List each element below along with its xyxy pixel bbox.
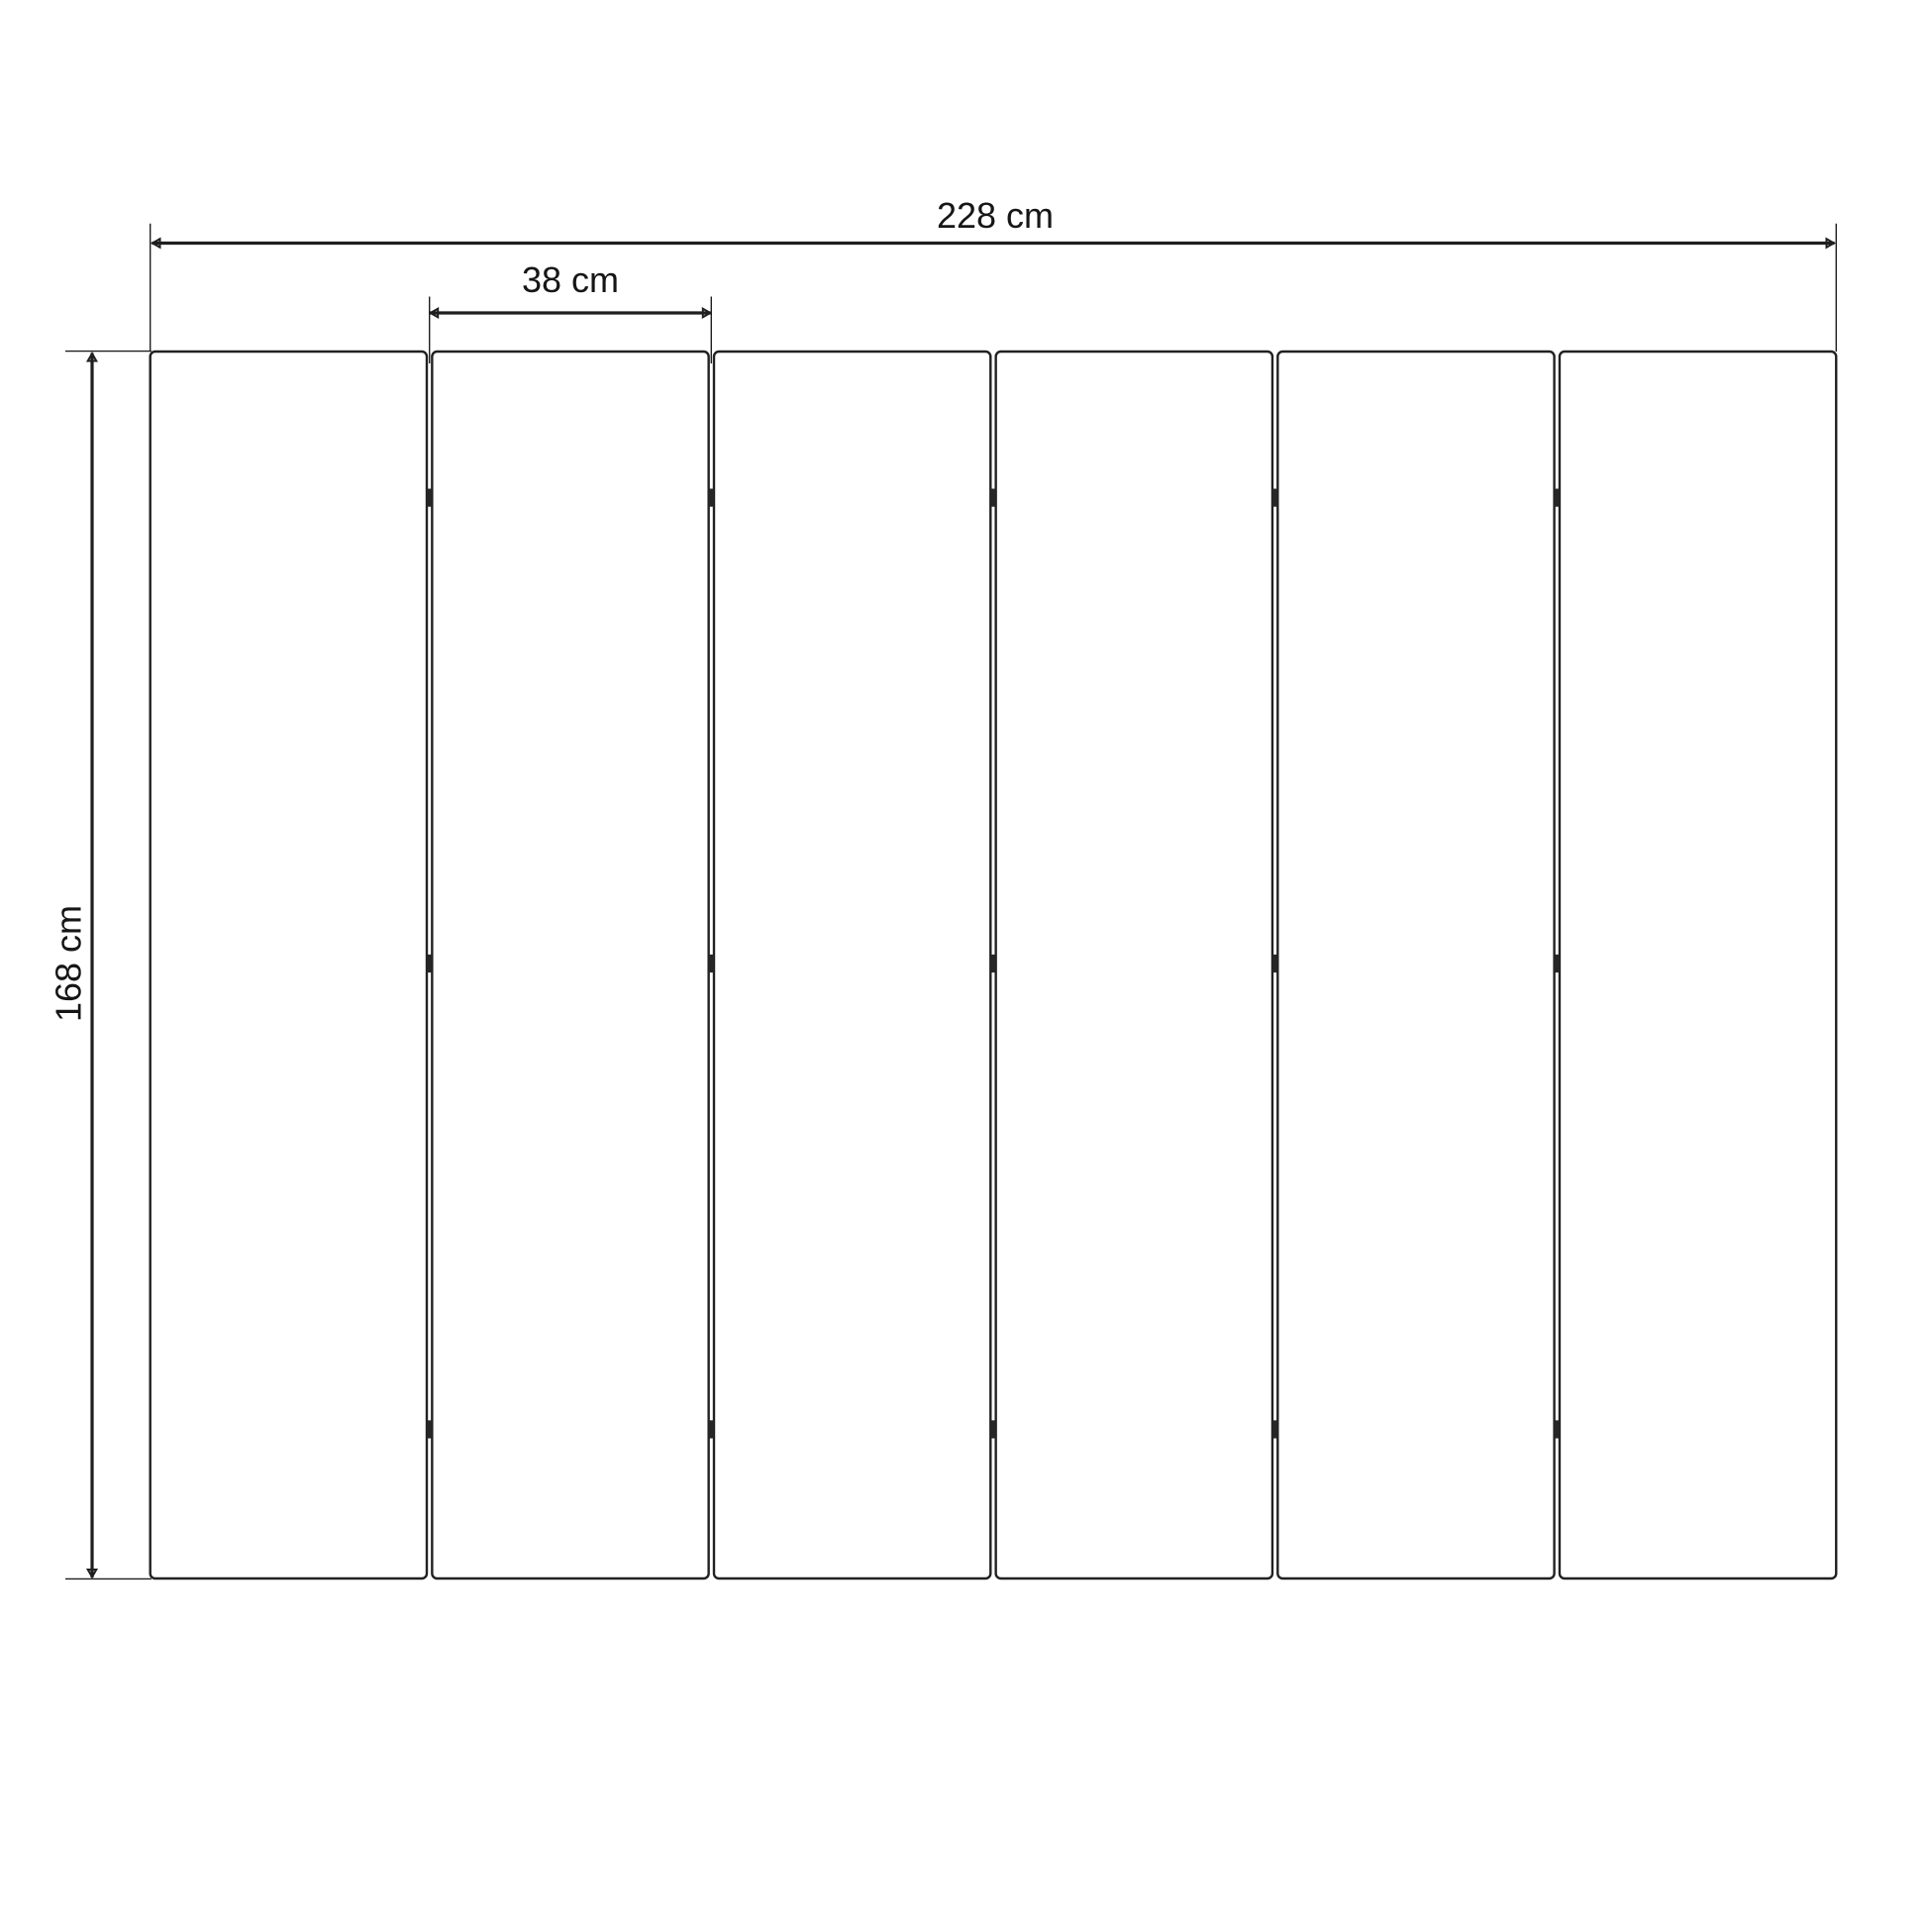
svg-text:228 cm: 228 cm <box>937 195 1054 236</box>
svg-text:168 cm: 168 cm <box>49 905 89 1022</box>
svg-text:38 cm: 38 cm <box>522 259 619 300</box>
